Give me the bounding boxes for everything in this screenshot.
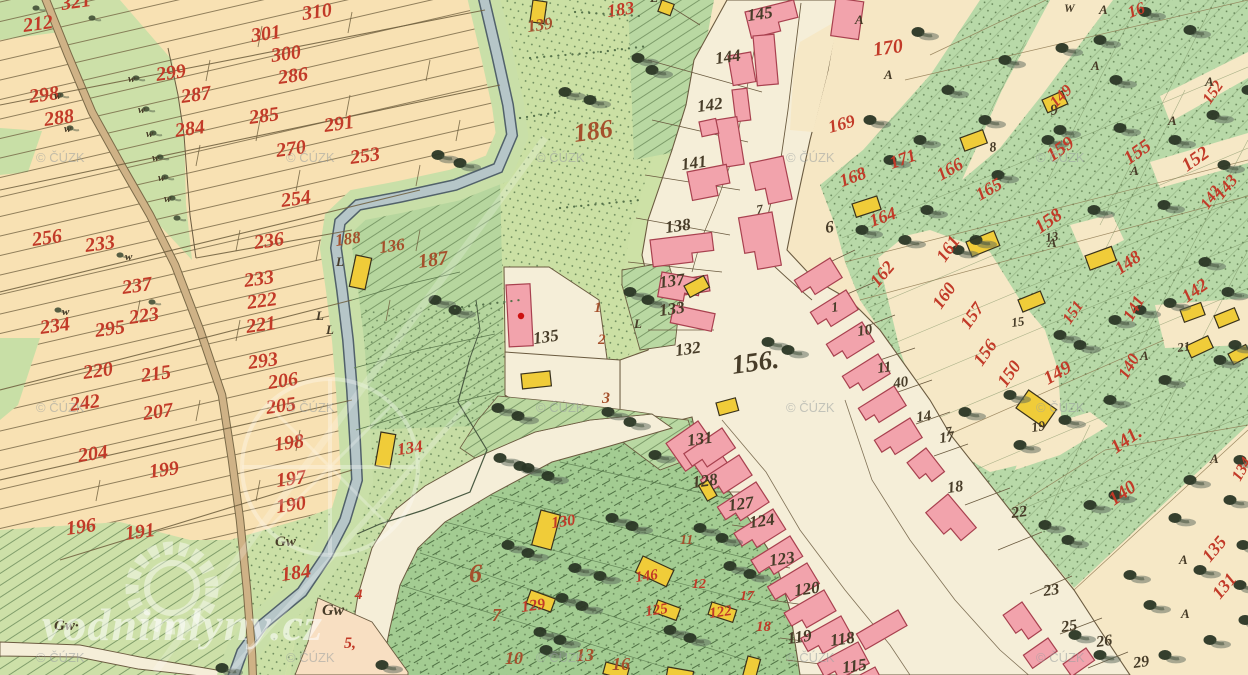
svg-text:199: 199 — [148, 457, 181, 483]
svg-text:18: 18 — [756, 619, 772, 635]
svg-text:138: 138 — [664, 215, 692, 237]
svg-text:© ČÚZK: © ČÚZK — [786, 150, 835, 165]
svg-text:A: A — [1129, 163, 1139, 178]
svg-text:A: A — [854, 12, 864, 27]
svg-text:144: 144 — [714, 46, 742, 68]
svg-text:170: 170 — [872, 35, 905, 61]
svg-text:A: A — [1047, 235, 1057, 250]
svg-text:A: A — [1090, 58, 1100, 73]
svg-text:© ČÚZK: © ČÚZK — [286, 400, 335, 415]
svg-text:142: 142 — [696, 94, 724, 116]
svg-text:139: 139 — [526, 14, 554, 36]
svg-text:141: 141 — [680, 152, 708, 174]
svg-text:119: 119 — [786, 626, 813, 648]
svg-text:A: A — [1204, 74, 1214, 89]
svg-text:295: 295 — [93, 316, 127, 342]
svg-text:29: 29 — [1131, 653, 1150, 672]
svg-text:3: 3 — [601, 390, 610, 407]
svg-text:23: 23 — [1041, 581, 1060, 600]
svg-text:10: 10 — [856, 322, 874, 340]
svg-text:W: W — [1064, 1, 1076, 15]
svg-text:w: w — [62, 306, 70, 318]
svg-text:15: 15 — [1010, 313, 1025, 330]
svg-text:© ČÚZK: © ČÚZK — [786, 650, 835, 665]
svg-text:310: 310 — [300, 0, 334, 25]
svg-text:236: 236 — [252, 228, 286, 254]
svg-text:130: 130 — [550, 512, 576, 532]
svg-text:118: 118 — [829, 628, 856, 650]
svg-text:115: 115 — [841, 655, 868, 675]
svg-text:254: 254 — [279, 186, 313, 212]
svg-text:14: 14 — [915, 408, 933, 426]
svg-text:© ČÚZK: © ČÚZK — [1036, 400, 1085, 415]
svg-text:122: 122 — [708, 603, 733, 622]
svg-text:© ČÚZK: © ČÚZK — [286, 650, 335, 665]
svg-text:188: 188 — [334, 228, 362, 250]
svg-text:w: w — [152, 152, 160, 164]
svg-text:L: L — [633, 316, 642, 331]
svg-text:127: 127 — [727, 492, 756, 515]
svg-text:253: 253 — [348, 143, 382, 169]
svg-text:291: 291 — [322, 111, 356, 137]
svg-text:© ČÚZK: © ČÚZK — [36, 400, 85, 415]
svg-text:299: 299 — [154, 60, 188, 86]
svg-text:40: 40 — [891, 374, 910, 392]
svg-text:L: L — [315, 308, 324, 323]
svg-text:186: 186 — [572, 114, 615, 148]
svg-text:284: 284 — [173, 116, 207, 142]
svg-text:L: L — [649, 0, 658, 5]
svg-text:287: 287 — [179, 82, 214, 108]
svg-text:220: 220 — [81, 358, 115, 384]
svg-text:w: w — [164, 193, 172, 205]
svg-text:19: 19 — [1030, 419, 1046, 436]
svg-text:© ČÚZK: © ČÚZK — [36, 150, 85, 165]
svg-text:Gw: Gw — [322, 602, 345, 619]
svg-text:129: 129 — [520, 596, 546, 616]
svg-text:233: 233 — [83, 231, 117, 257]
svg-text:A: A — [1180, 606, 1190, 621]
svg-text:© ČÚZK: © ČÚZK — [786, 400, 835, 415]
svg-text:300: 300 — [269, 41, 303, 67]
svg-text:© ČÚZK: © ČÚZK — [1036, 150, 1085, 165]
svg-text:7: 7 — [492, 605, 502, 625]
svg-text:w: w — [138, 104, 146, 116]
svg-text:125: 125 — [644, 601, 669, 620]
svg-text:222: 222 — [245, 288, 279, 314]
svg-text:vodnimlyny.cz: vodnimlyny.cz — [42, 599, 323, 650]
svg-text:145: 145 — [746, 3, 774, 25]
svg-text:10: 10 — [505, 648, 523, 668]
svg-text:204: 204 — [76, 441, 110, 467]
svg-text:L: L — [335, 254, 344, 269]
svg-text:4: 4 — [354, 587, 363, 603]
svg-text:136: 136 — [378, 235, 406, 257]
svg-text:22: 22 — [1009, 503, 1028, 522]
svg-text:w: w — [158, 172, 166, 184]
svg-text:© ČÚZK: © ČÚZK — [286, 150, 335, 165]
svg-text:25: 25 — [1059, 617, 1078, 636]
svg-text:207: 207 — [141, 399, 176, 425]
svg-text:18: 18 — [946, 478, 964, 497]
svg-text:12: 12 — [692, 577, 706, 592]
svg-text:212: 212 — [21, 11, 55, 37]
svg-text:191: 191 — [124, 519, 157, 545]
svg-text:w: w — [125, 251, 133, 263]
svg-text:256: 256 — [30, 225, 64, 251]
svg-text:137: 137 — [658, 269, 687, 292]
svg-text:11: 11 — [680, 533, 693, 548]
svg-text:124: 124 — [748, 510, 776, 532]
svg-text:223: 223 — [127, 303, 161, 329]
svg-text:120: 120 — [793, 578, 821, 600]
svg-text:286: 286 — [276, 63, 310, 89]
svg-text:2: 2 — [597, 332, 606, 348]
svg-text:A: A — [1178, 552, 1188, 567]
svg-text:A: A — [1098, 2, 1108, 17]
svg-text:11: 11 — [876, 359, 892, 377]
svg-text:146: 146 — [634, 567, 659, 586]
svg-text:237: 237 — [120, 273, 155, 299]
svg-text:131: 131 — [686, 428, 714, 450]
svg-text:A: A — [1209, 451, 1219, 466]
svg-text:A: A — [883, 67, 893, 82]
svg-text:w: w — [128, 73, 136, 85]
svg-text:132: 132 — [674, 338, 702, 360]
svg-text:L: L — [325, 322, 334, 337]
svg-text:123: 123 — [768, 548, 796, 570]
svg-text:221: 221 — [244, 312, 278, 338]
svg-text:285: 285 — [247, 103, 281, 129]
svg-text:A: A — [1167, 113, 1177, 128]
svg-text:135: 135 — [532, 326, 560, 348]
svg-text:© ČÚZK: © ČÚZK — [1036, 650, 1085, 665]
svg-text:198: 198 — [273, 430, 306, 456]
svg-text:215: 215 — [139, 361, 173, 387]
svg-text:1: 1 — [594, 300, 602, 316]
svg-text:© ČÚZK: © ČÚZK — [536, 650, 585, 665]
svg-text:© ČÚZK: © ČÚZK — [536, 400, 585, 415]
svg-text:w: w — [64, 123, 72, 135]
svg-text:128: 128 — [691, 470, 719, 492]
svg-text:26: 26 — [1094, 632, 1113, 651]
svg-text:A: A — [1139, 348, 1149, 363]
svg-text:w: w — [54, 90, 62, 102]
svg-text:17: 17 — [740, 589, 755, 604]
svg-text:196: 196 — [65, 514, 98, 540]
svg-text:5,: 5, — [344, 635, 356, 652]
svg-text:133: 133 — [658, 298, 686, 320]
svg-text:16: 16 — [612, 654, 630, 674]
svg-text:206: 206 — [266, 368, 300, 394]
svg-text:© ČÚZK: © ČÚZK — [536, 150, 585, 165]
svg-text:w: w — [146, 128, 154, 140]
svg-text:6: 6 — [469, 559, 482, 588]
svg-text:© ČÚZK: © ČÚZK — [36, 650, 85, 665]
svg-text:183: 183 — [606, 0, 636, 21]
svg-text:21: 21 — [1175, 338, 1191, 355]
